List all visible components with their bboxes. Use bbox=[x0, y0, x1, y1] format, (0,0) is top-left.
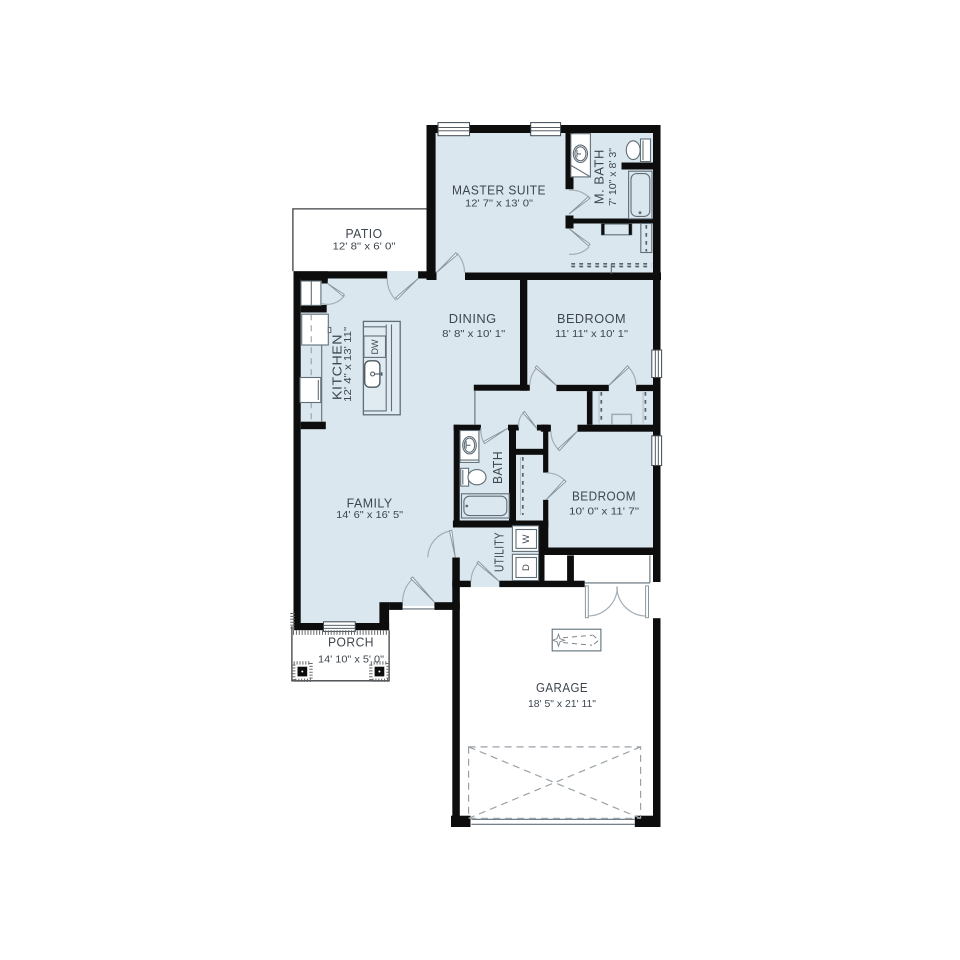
svg-text:MASTER SUITE: MASTER SUITE bbox=[452, 183, 546, 198]
svg-text:UTILITY: UTILITY bbox=[492, 532, 507, 572]
svg-text:GARAGE: GARAGE bbox=[536, 680, 588, 695]
svg-text:12' 7" x 13' 0": 12' 7" x 13' 0" bbox=[465, 198, 533, 209]
svg-text:DW: DW bbox=[370, 339, 380, 354]
svg-text:18' 5" x 21' 11": 18' 5" x 21' 11" bbox=[528, 699, 596, 710]
svg-text:M. BATH: M. BATH bbox=[591, 149, 606, 204]
svg-text:12' 8" x 6' 0": 12' 8" x 6' 0" bbox=[333, 242, 396, 253]
svg-text:14' 10" x 5' 0": 14' 10" x 5' 0" bbox=[318, 655, 384, 666]
svg-text:PATIO: PATIO bbox=[346, 226, 383, 241]
svg-text:14' 6" x 16' 5": 14' 6" x 16' 5" bbox=[336, 510, 403, 521]
svg-text:BEDROOM: BEDROOM bbox=[572, 489, 636, 504]
svg-text:D: D bbox=[521, 564, 532, 571]
svg-text:10' 0" x 11' 7": 10' 0" x 11' 7" bbox=[569, 507, 639, 518]
svg-text:8' 8" x 10' 1": 8' 8" x 10' 1" bbox=[442, 329, 505, 340]
svg-text:BEDROOM: BEDROOM bbox=[557, 311, 626, 326]
svg-text:7' 10" x 8' 3": 7' 10" x 8' 3" bbox=[608, 148, 619, 206]
svg-text:PORCH: PORCH bbox=[328, 635, 374, 650]
svg-text:BATH: BATH bbox=[490, 451, 505, 484]
svg-text:DINING: DINING bbox=[449, 311, 497, 326]
svg-text:W: W bbox=[521, 534, 532, 543]
svg-text:11' 11" x 10' 1": 11' 11" x 10' 1" bbox=[555, 329, 628, 340]
svg-text:12' 4" x 13' 11": 12' 4" x 13' 11" bbox=[343, 326, 354, 401]
svg-text:FAMILY: FAMILY bbox=[347, 496, 393, 511]
